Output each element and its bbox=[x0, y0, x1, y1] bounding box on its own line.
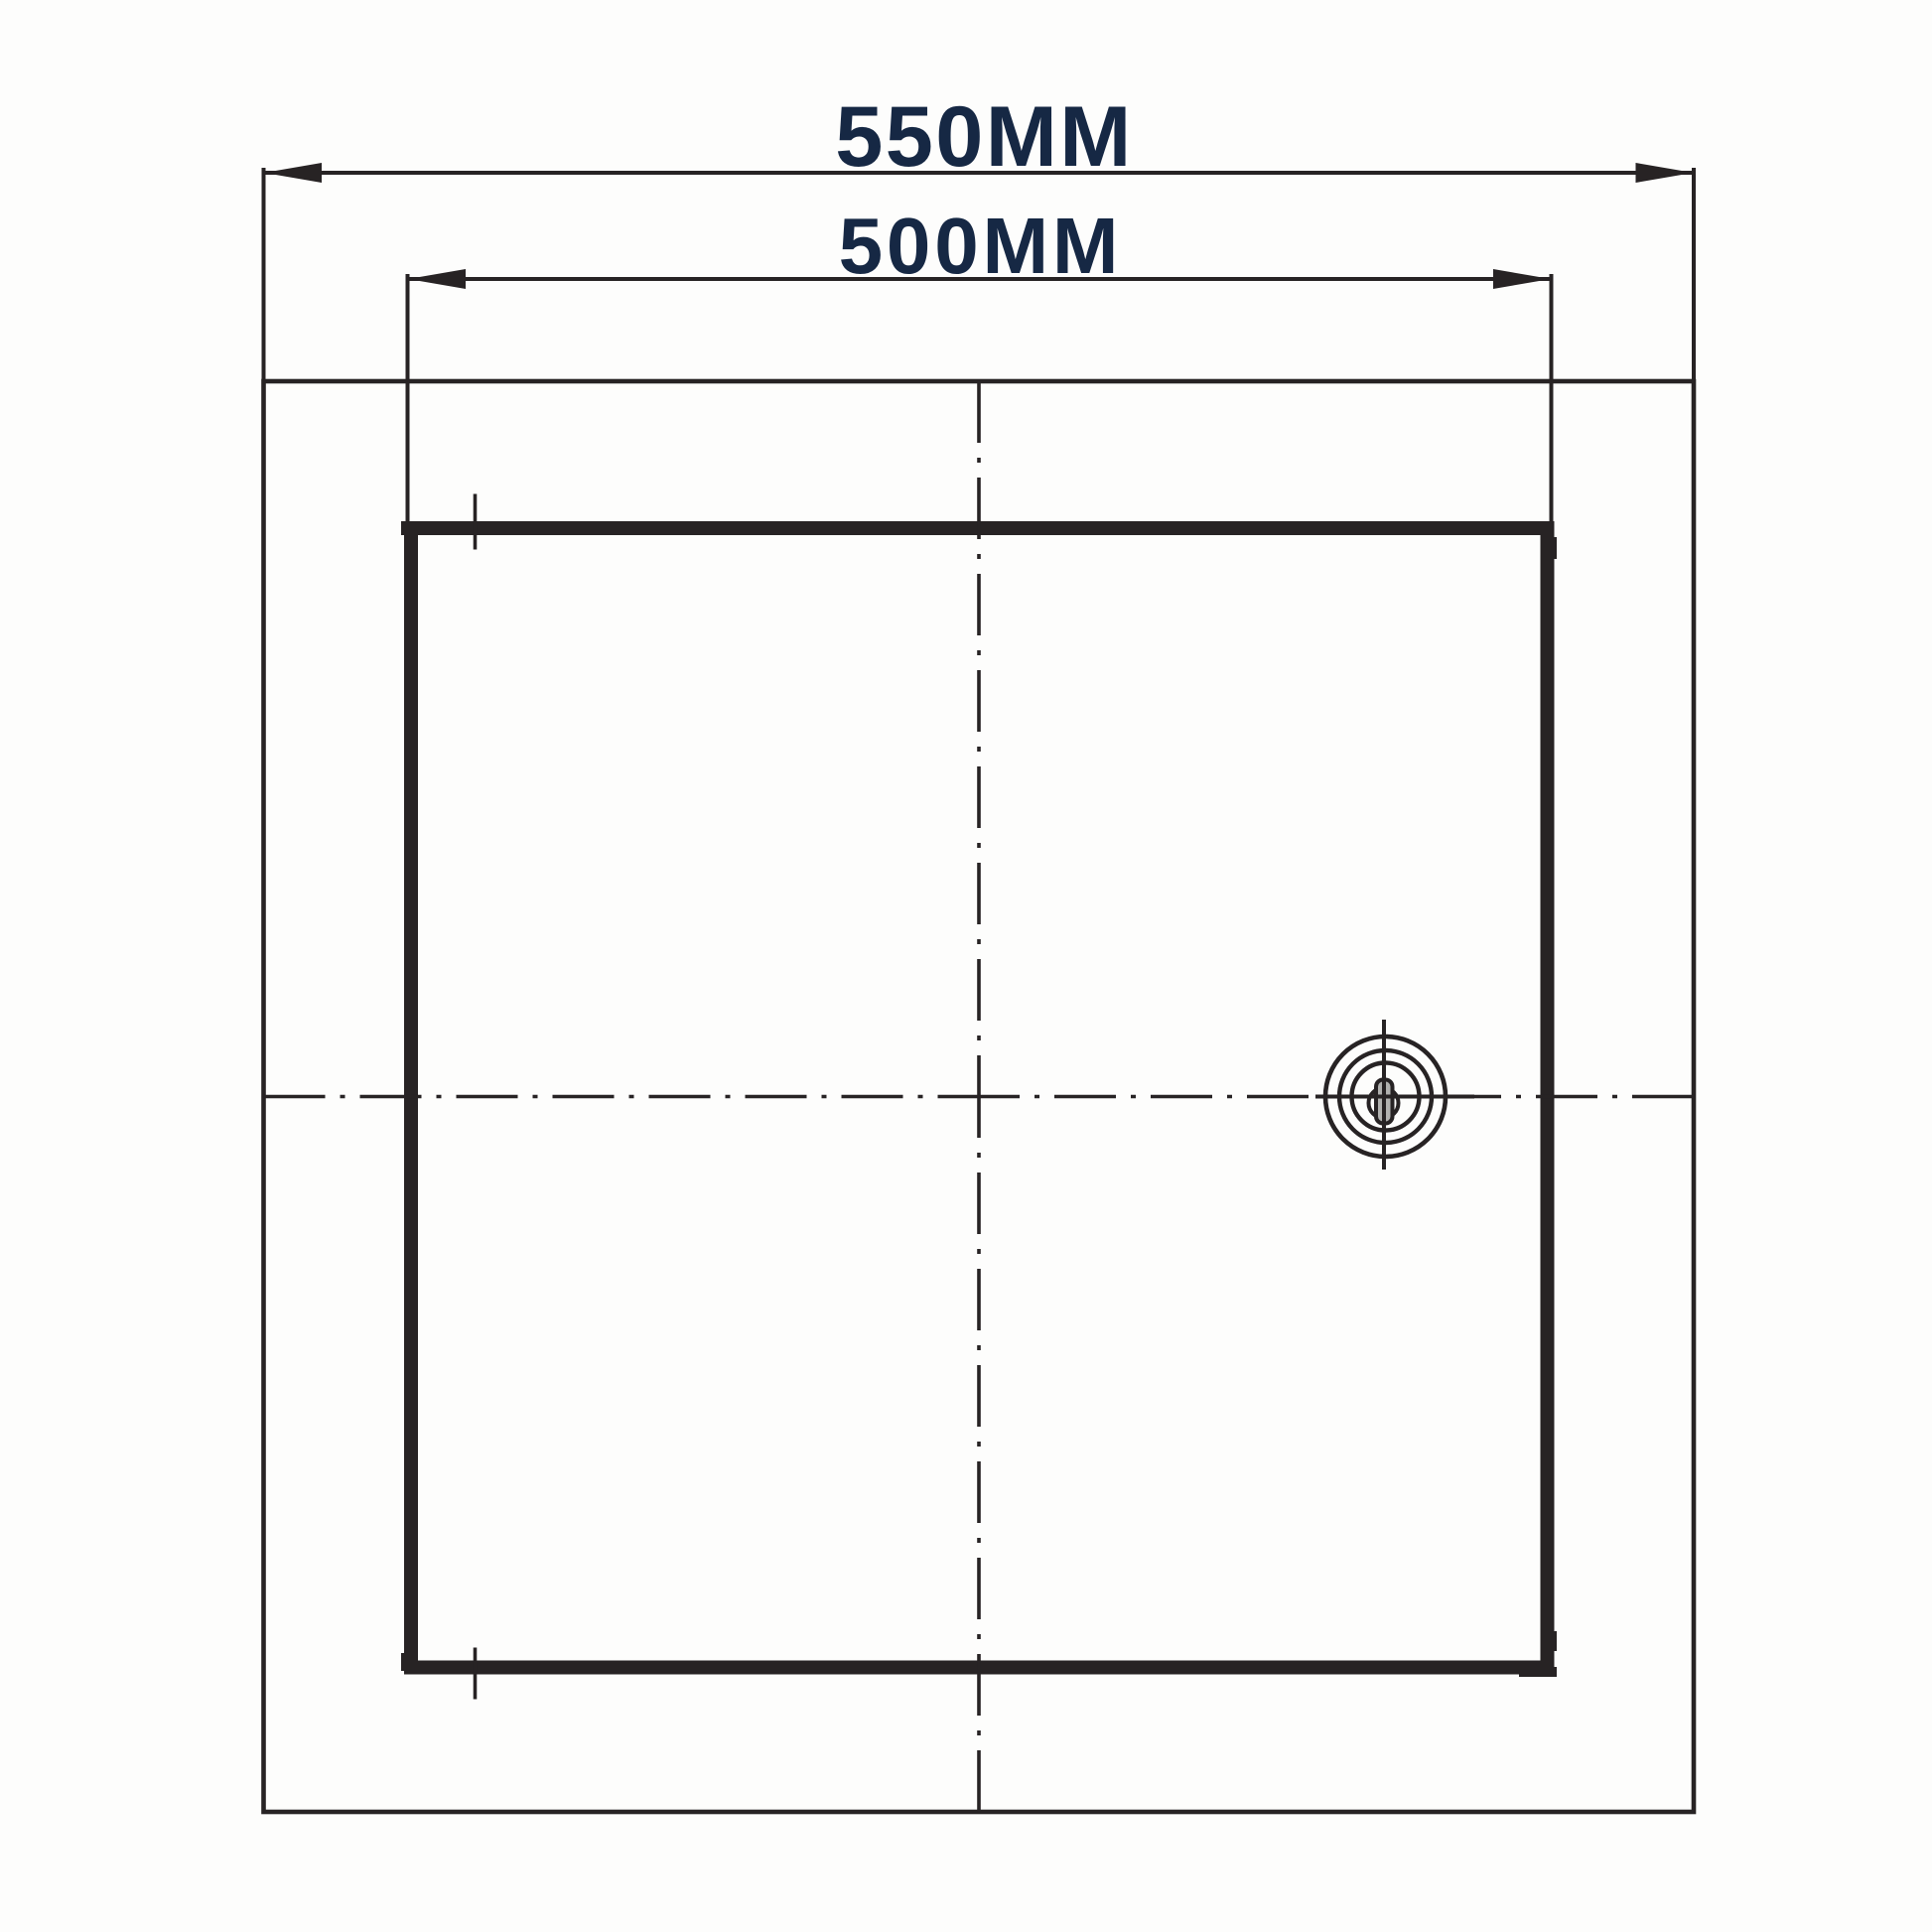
svg-text:500MM: 500MM bbox=[839, 202, 1123, 290]
svg-text:550MM: 550MM bbox=[835, 89, 1133, 185]
